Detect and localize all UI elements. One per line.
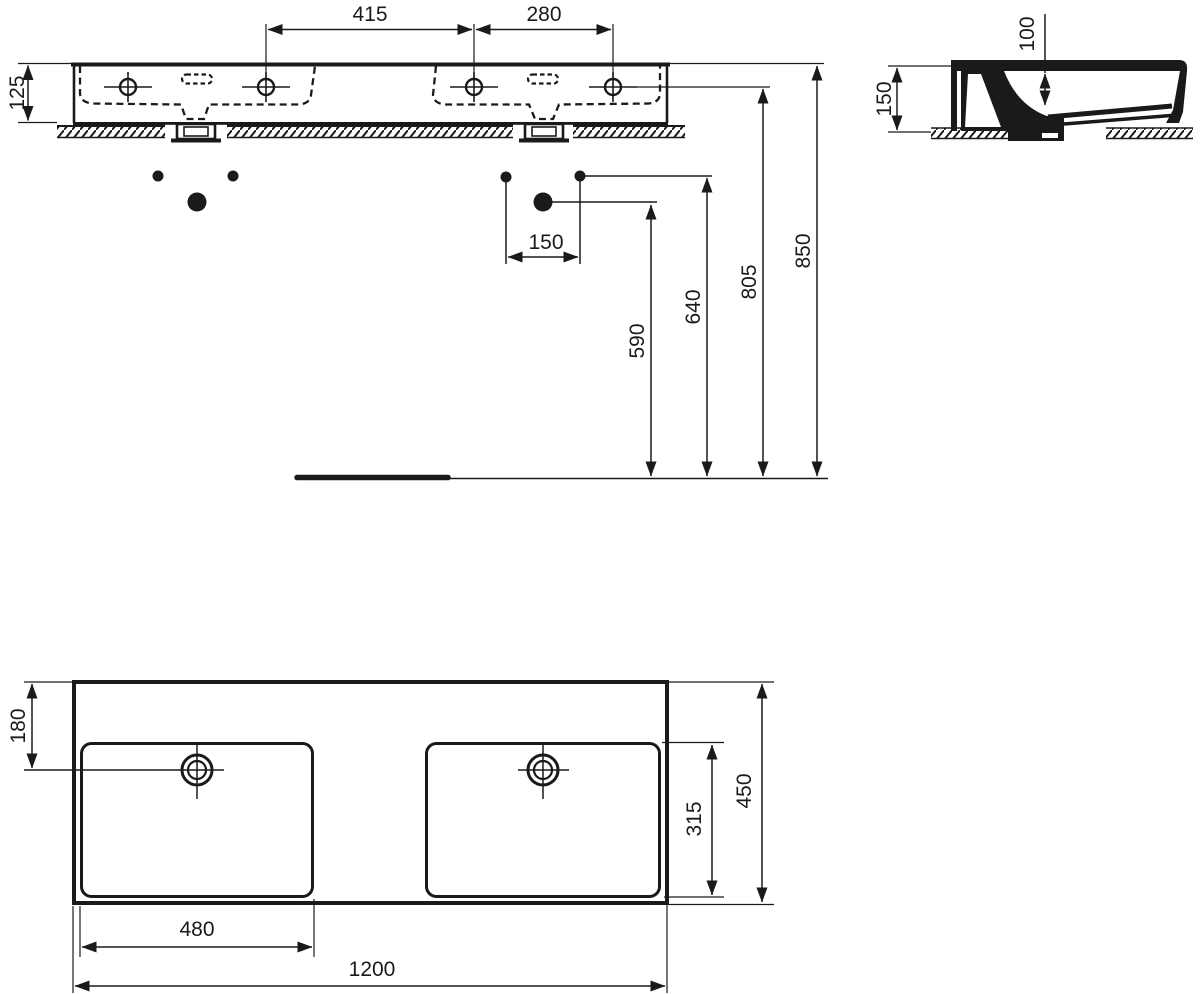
plan-tap-hole-right <box>518 744 569 799</box>
dim-590: 590 <box>626 205 651 476</box>
dim-450: 450 <box>669 682 774 905</box>
dim-180-label: 180 <box>7 708 30 743</box>
dim-480-label: 480 <box>179 918 214 941</box>
front-view <box>57 63 685 141</box>
dim-280-label: 280 <box>526 3 561 26</box>
dim-450-label: 450 <box>733 773 756 808</box>
dim-415-label: 415 <box>352 3 387 26</box>
dim-590-label: 590 <box>626 323 649 358</box>
dim-415: 415 <box>266 3 474 80</box>
side-view: 150 100 <box>873 14 1193 141</box>
dim-1200-label: 1200 <box>349 958 396 981</box>
dim-315: 315 <box>662 743 724 898</box>
dim-480: 480 <box>80 899 314 957</box>
plan-tap-hole-left <box>182 744 212 799</box>
dim-280: 280 <box>476 3 613 80</box>
side-bowl-bottom <box>1048 106 1177 124</box>
dim-805-label: 805 <box>738 264 761 299</box>
plan-view: 180 315 450 480 1200 <box>7 682 774 993</box>
front-wall-hatch <box>57 125 685 140</box>
overflow-slot-dashed <box>182 75 558 84</box>
front-basin-outline <box>71 63 670 124</box>
dim-150-fixing: 150 <box>508 231 578 257</box>
dim-150-side: 150 <box>873 66 951 132</box>
dim-100-label: 100 <box>1016 16 1039 51</box>
technical-drawing-sheet: 415 280 125 <box>0 0 1200 994</box>
dim-850: 850 <box>792 66 817 476</box>
dim-125-label: 125 <box>6 75 29 110</box>
siphon-bracket-right <box>519 124 569 141</box>
dim-640-label: 640 <box>682 289 705 324</box>
dim-150-fixing-label: 150 <box>528 231 563 254</box>
dim-850-label: 850 <box>792 233 815 268</box>
dim-125: 125 <box>6 64 71 123</box>
tap-hole-icon <box>104 72 152 102</box>
dim-315-label: 315 <box>683 801 706 836</box>
plan-outer-rect <box>74 682 667 903</box>
dim-1200: 1200 <box>73 899 667 993</box>
washbasin-dimension-drawing: 415 280 125 <box>0 0 1200 994</box>
fixing-holes-right <box>501 171 586 212</box>
fixing-holes-left <box>153 171 239 212</box>
dim-640: 640 <box>682 178 707 476</box>
dim-150-side-label: 150 <box>873 81 896 116</box>
dim-100: 100 <box>1016 14 1045 105</box>
siphon-bracket-left <box>171 124 221 141</box>
dim-805: 805 <box>738 89 763 476</box>
floor-line <box>297 478 828 479</box>
